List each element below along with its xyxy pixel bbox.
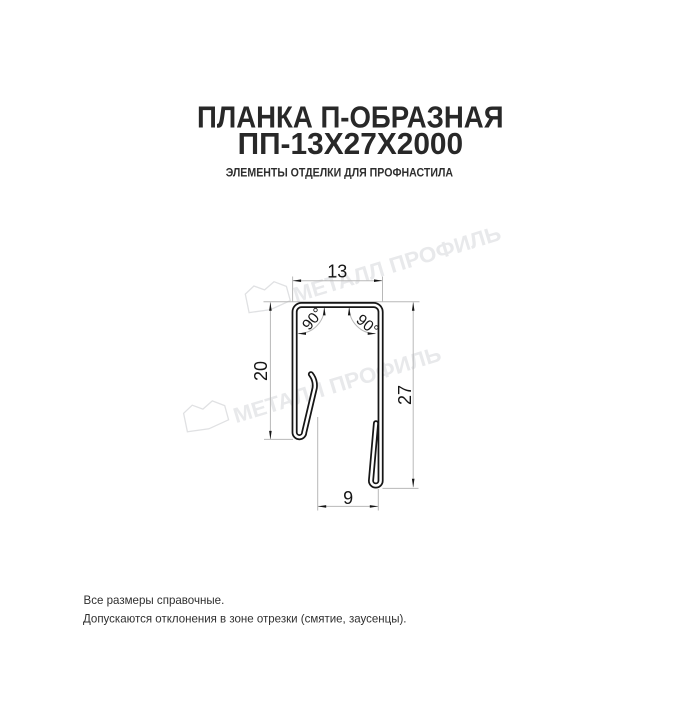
svg-text:ПП-13Х27Х2000: ПП-13Х27Х2000 [238,126,464,161]
svg-text:9: 9 [343,488,353,508]
svg-text:ЭЛЕМЕНТЫ ОТДЕЛКИ ДЛЯ ПРОФНАСТИ: ЭЛЕМЕНТЫ ОТДЕЛКИ ДЛЯ ПРОФНАСТИЛА [226,165,454,179]
svg-text:27: 27 [395,385,415,405]
svg-text:Все размеры справочные.: Все размеры справочные. [84,593,225,607]
svg-text:20: 20 [251,361,271,381]
svg-text:13: 13 [327,261,347,281]
svg-text:Допускаются отклонения в зоне: Допускаются отклонения в зоне отрезки (с… [83,611,407,625]
